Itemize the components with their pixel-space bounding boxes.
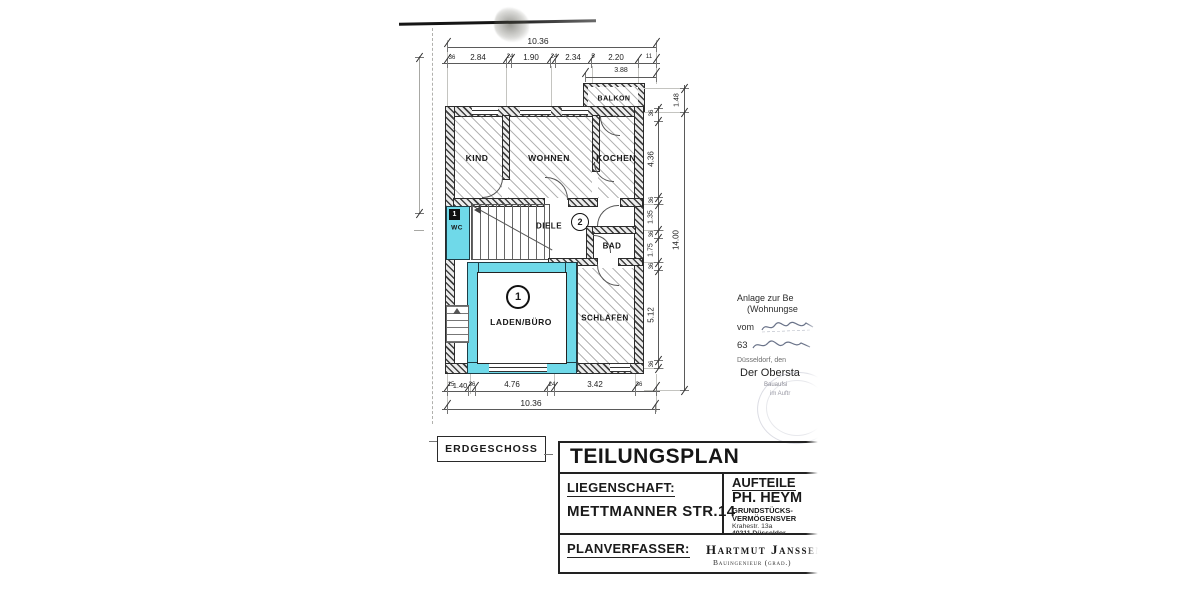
dim-segment: 3.42 <box>587 380 603 389</box>
aufteiler-desc2: VERMÖGENSVER <box>732 514 796 523</box>
floor-label-box: ERDGESCHOSS <box>437 436 546 462</box>
dim-wall: 11 <box>646 54 652 60</box>
dim-wall: 24 <box>551 54 558 60</box>
dim-wall: 36 <box>649 197 655 204</box>
unit-marker-1: 1 <box>506 285 530 309</box>
floor-label: ERDGESCHOSS <box>445 443 538 455</box>
window <box>472 106 498 115</box>
dim-segment: 1.75 <box>648 243 655 257</box>
annotation-line2: (Wohnungse <box>747 304 798 314</box>
unit-tag-wc: 1 <box>449 209 460 220</box>
title-block-title: TEILUNGSPLAN <box>570 445 739 469</box>
liegenschaft-label: LIEGENSCHAFT: <box>567 480 675 497</box>
aufteiler-name: PH. HEYM <box>732 490 802 506</box>
floor-label-tick <box>429 441 437 442</box>
dim-wall: 5 <box>591 54 594 60</box>
dim-segment: 5.12 <box>647 307 656 323</box>
dim-segment: 1.35 <box>648 210 655 224</box>
room-label-balkon: BALKON <box>598 96 631 103</box>
annotation-vom-label: vom <box>737 322 754 332</box>
window <box>610 363 630 372</box>
property-boundary-line <box>432 28 433 424</box>
dim-wall: 36 <box>636 382 643 388</box>
door-arc <box>594 162 614 182</box>
dim-wall: 24 <box>549 382 556 388</box>
planverfasser-label: PLANVERFASSER: <box>567 541 690 558</box>
dim-segment: 4.36 <box>647 151 656 167</box>
planverfasser-title: Bauingenieur (grad.) <box>713 558 791 567</box>
dim-wall: 36 <box>649 361 655 368</box>
room-label-kind: KIND <box>466 153 489 163</box>
room-label-diele: DIELE <box>536 222 562 231</box>
aufteiler-addr2: 40211 Düsseldor <box>732 530 786 537</box>
dim-bottom-total: 10.36 <box>520 398 541 408</box>
wall-kind-wohnen <box>502 115 510 180</box>
annotation-line1: Anlage zur Be <box>737 293 794 303</box>
dim-segment: 4.76 <box>504 380 520 389</box>
liegenschaft-value: METTMANNER STR.14 <box>567 503 735 520</box>
dim-wall: 36 <box>469 382 476 388</box>
window <box>489 363 547 372</box>
door-arc <box>597 205 619 227</box>
stair-direction-arrow <box>474 206 481 214</box>
dim-right-total: 14.00 <box>672 230 681 250</box>
exterior-wall-right <box>634 106 644 374</box>
window <box>562 106 588 115</box>
room-label-wc: WC <box>451 225 463 232</box>
dim-segment: 2.34 <box>565 53 581 62</box>
dim-segment: 1.40 <box>453 381 468 390</box>
left-dimension-line <box>419 56 420 214</box>
aufteiler-addr1: Krahestr. 13a <box>732 523 772 530</box>
left-tick-mark <box>414 230 424 231</box>
wall-diele-schlafen <box>618 258 643 266</box>
dim-wall: 36 <box>649 263 655 270</box>
room-label-laden: LADEN/BÜRO <box>490 317 552 327</box>
dim-segment: 2.20 <box>608 53 624 62</box>
dim-top-total: 10.36 <box>527 36 548 46</box>
dim-wall: 24 <box>507 54 514 60</box>
handwriting-reference <box>751 337 813 353</box>
room-label-wohnen: WOHNEN <box>528 153 570 163</box>
wall-bad-top <box>592 226 636 234</box>
dim-wall: 36 <box>649 110 655 117</box>
room-label-bad: BAD <box>603 242 622 251</box>
window <box>520 106 551 115</box>
floor-label-tick <box>544 454 553 455</box>
dim-segment: 2.84 <box>470 53 486 62</box>
dim-wall: 36 <box>449 55 456 61</box>
unit-marker-2-number: 2 <box>577 217 582 227</box>
scanned-floor-plan-page: 10.36 36 2.84 24 1.90 24 2.34 5 2.20 11 … <box>0 0 1200 600</box>
room-label-schlafen: SCHLAFEN <box>581 314 629 323</box>
aufteiler-label: AUFTEILE <box>732 475 796 491</box>
unit-tag-wc-number: 1 <box>453 211 457 218</box>
dim-wall: 36 <box>649 231 655 238</box>
wall-middle <box>568 198 598 207</box>
dim-balcony-depth: 1.48 <box>674 93 681 107</box>
annotation-number: 63 <box>737 340 748 351</box>
scan-edge-white <box>818 0 1200 600</box>
unit-marker-1-number: 1 <box>515 291 521 303</box>
dim-segment: 1.90 <box>523 53 539 62</box>
wall-middle <box>620 198 643 207</box>
steps-arrow <box>453 308 461 314</box>
dim-balcony-width: 3.88 <box>614 67 628 74</box>
annotation-date-line: Düsseldorf, den <box>737 357 786 364</box>
